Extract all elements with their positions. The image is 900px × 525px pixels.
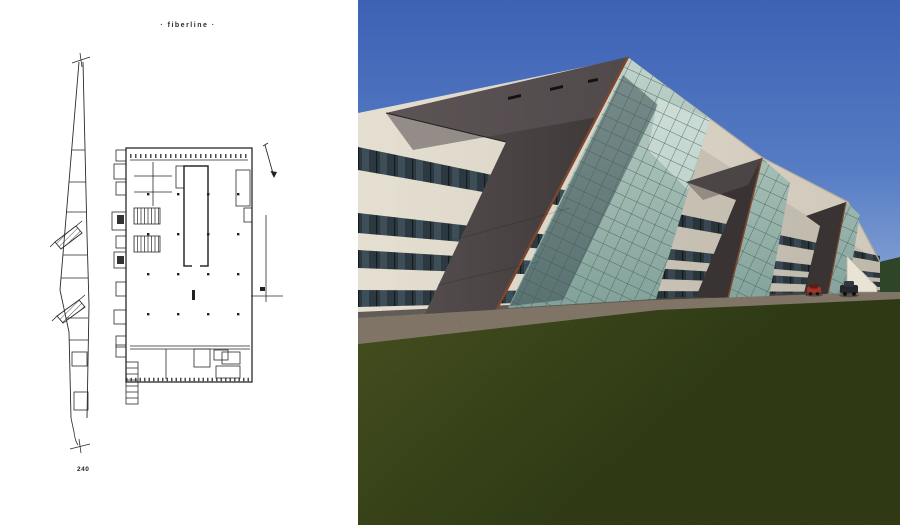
left-page: · fiberline ·: [0, 0, 358, 525]
building-photograph: [358, 0, 900, 525]
plan-left-cells: [112, 150, 126, 347]
north-arrow-icon: [263, 143, 277, 178]
site-boundary-line: [251, 215, 283, 302]
plan-column-grid: [147, 193, 239, 315]
book-spread: · fiberline ·: [0, 0, 900, 525]
floor-plan-drawing: [112, 143, 283, 404]
page-number: 240: [77, 466, 89, 473]
section-brace-upper: [50, 221, 82, 249]
architectural-drawings: [0, 0, 358, 525]
section-brace-lower: [52, 295, 85, 323]
section-drawing: [50, 53, 90, 453]
plan-ladder: [116, 345, 138, 404]
